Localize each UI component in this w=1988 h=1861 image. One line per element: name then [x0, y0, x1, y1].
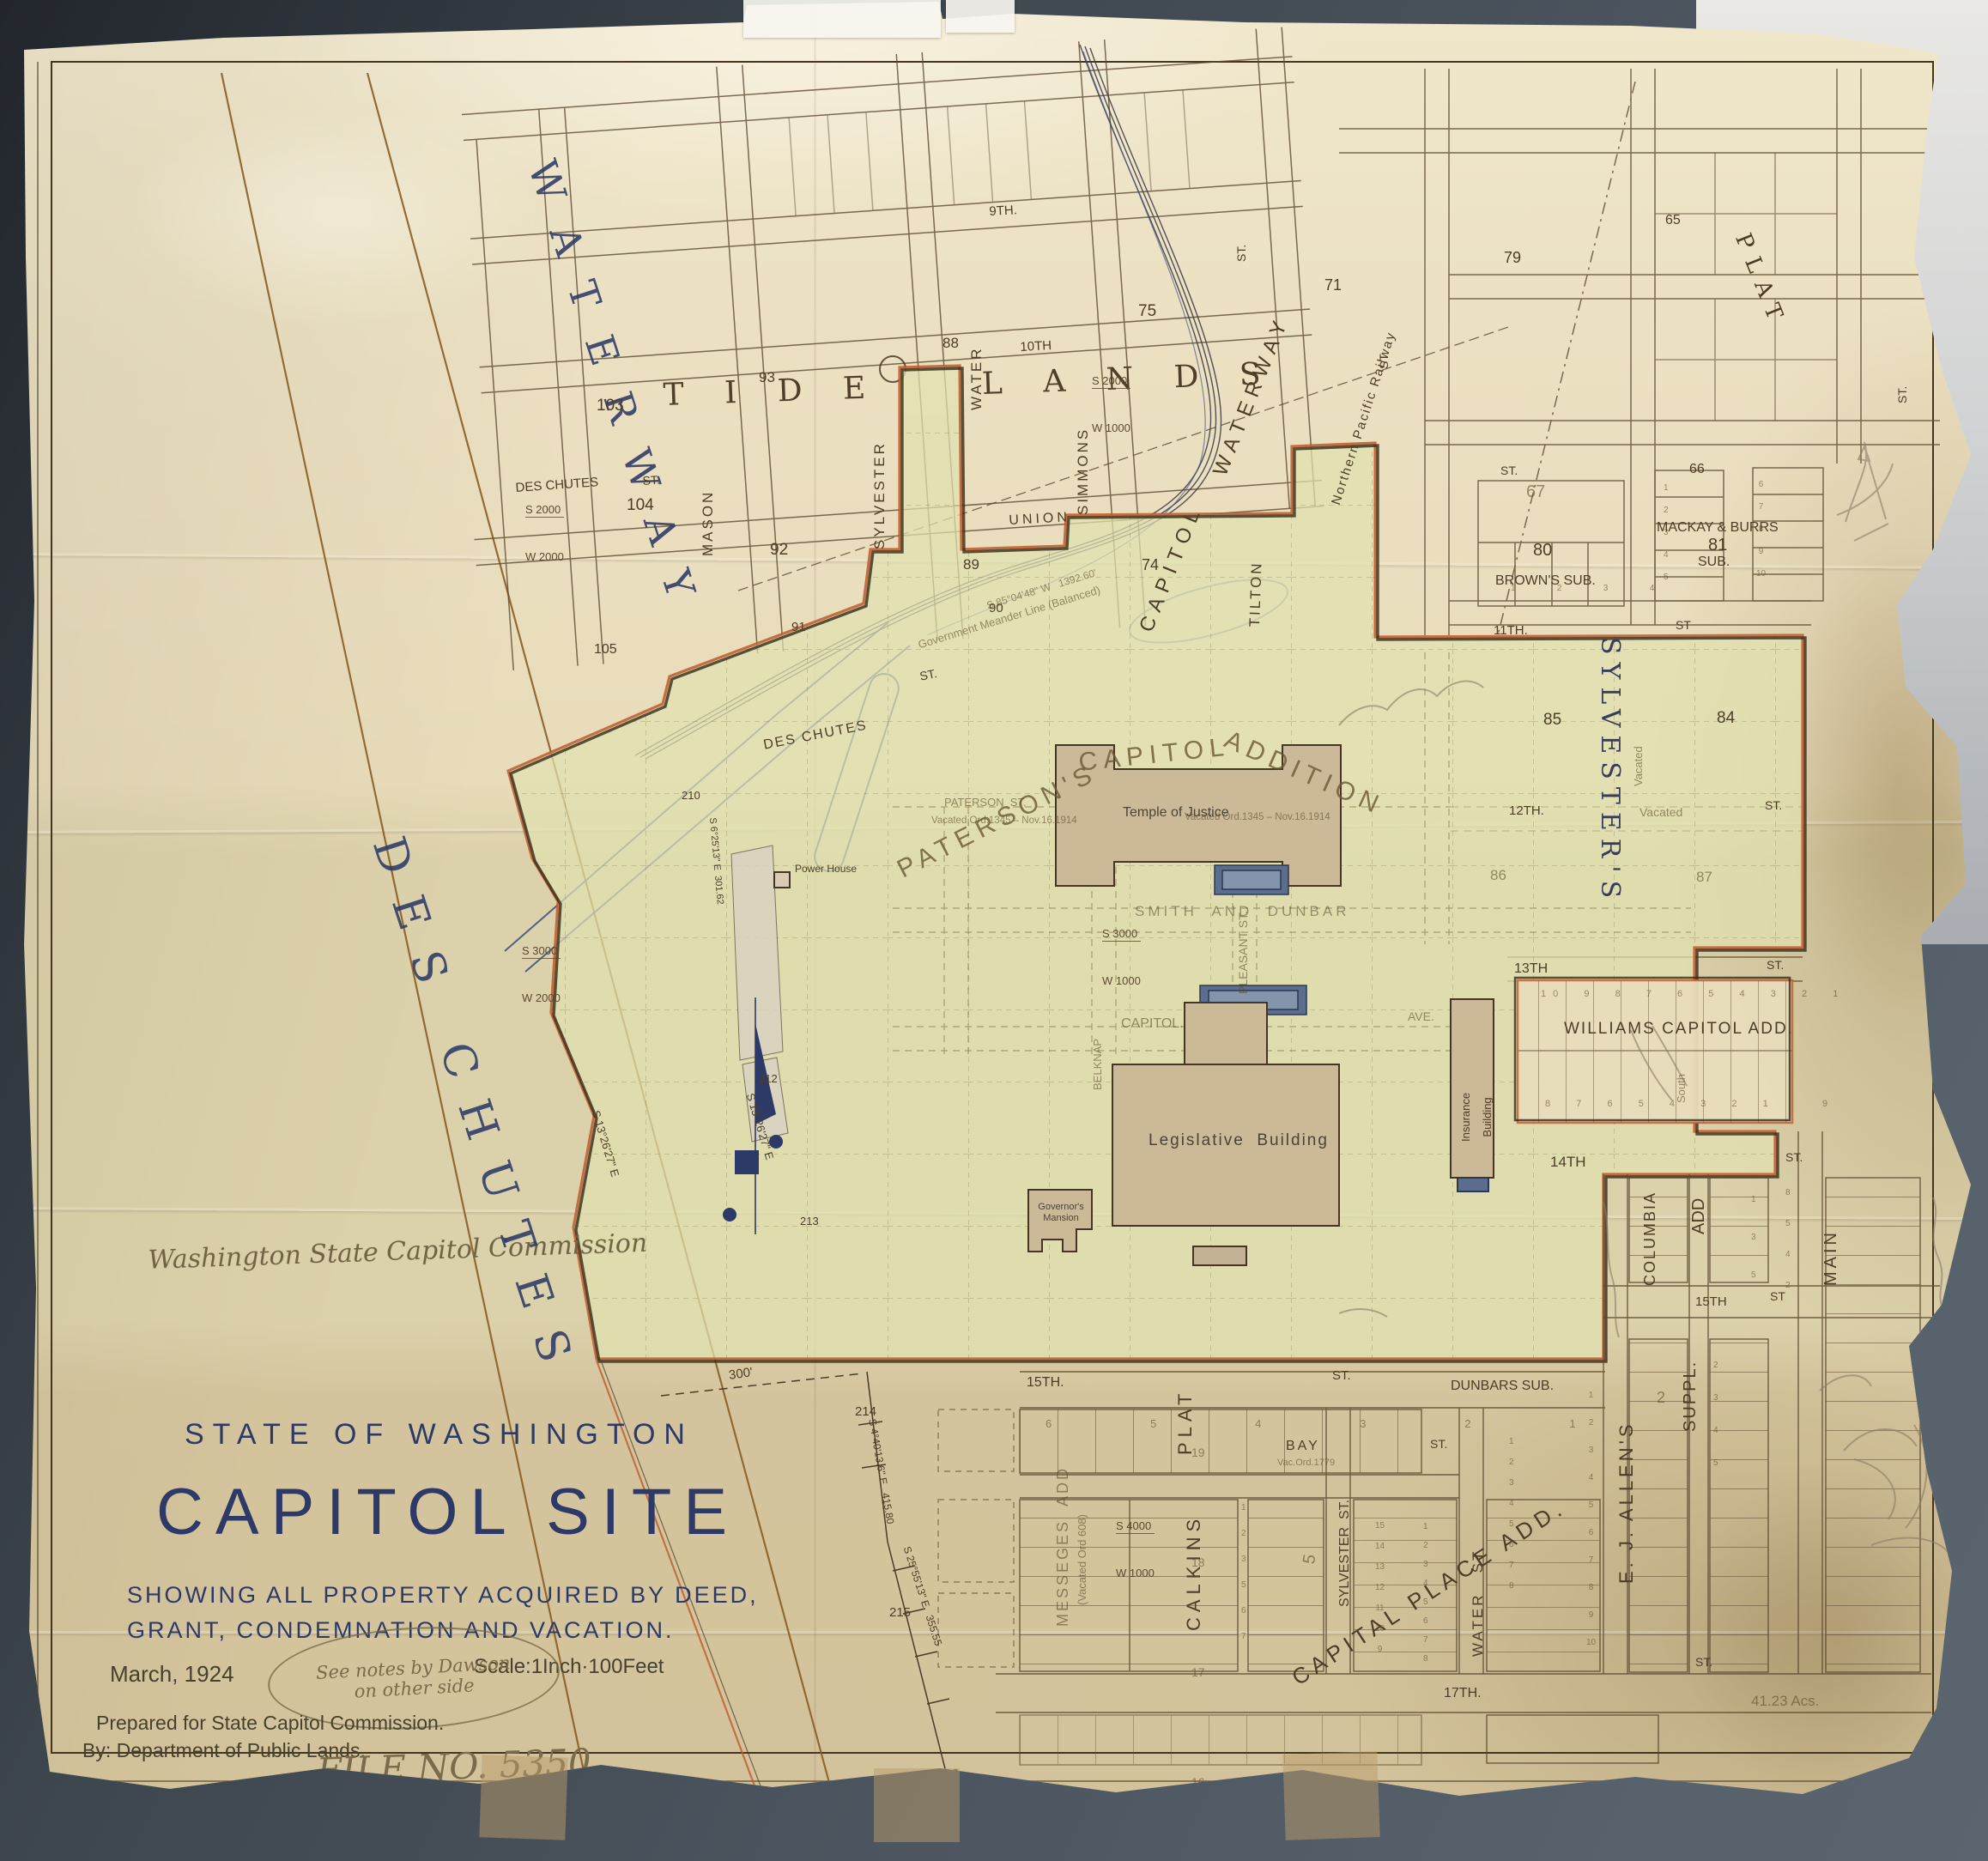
block-74: 74	[1142, 556, 1159, 574]
block-85: 85	[1543, 711, 1561, 730]
block-90: 90	[989, 601, 1003, 615]
mackay-lots-col1: 1 2 3 4 5	[1664, 477, 1669, 589]
street-15th-east: 15TH	[1695, 1294, 1727, 1309]
block-92: 92	[770, 541, 788, 560]
street-st-c: ST.	[1895, 386, 1909, 403]
survey-mark-west: W 1000	[1092, 421, 1130, 436]
ej-allens-label: E. J. ALLEN'S	[1615, 1422, 1637, 1585]
block-104: 104	[627, 496, 654, 515]
map-date: March, 1924	[110, 1662, 234, 1688]
survey-mark-west: W 2000	[522, 991, 561, 1006]
street-ave: AVE.	[1408, 1009, 1434, 1023]
browns-lots: 1 2 3 4	[1511, 584, 1663, 594]
block-65: 65	[1665, 213, 1681, 228]
block-71: 71	[1324, 276, 1342, 294]
station-210: 210	[682, 790, 700, 803]
acreage-label: 41.23 Acs.	[1751, 1693, 1819, 1710]
survey-mark-south: S 2000	[525, 502, 564, 518]
tape-strip-bottom-2	[874, 1768, 960, 1842]
columbia-lots: 1 3 5	[1751, 1181, 1756, 1294]
survey-mark-south: S 2000	[1092, 373, 1130, 390]
block-79: 79	[1504, 249, 1521, 267]
sylvester-vacated: Vacated	[1633, 746, 1646, 786]
street-11th: 11TH.	[1494, 623, 1528, 638]
survey-mark-west: W 1000	[1102, 973, 1141, 989]
sylvesters-plat-label: SYLVESTER'S	[1595, 637, 1625, 906]
street-10th: 10TH	[1020, 338, 1052, 355]
street-12th: 12TH.	[1509, 803, 1544, 818]
dunbars-sub-label: DUNBARS SUB.	[1451, 1379, 1554, 1394]
block-89: 89	[963, 556, 979, 573]
calkins-block-numbers: 19 18 17 16	[1191, 1397, 1205, 1837]
block-81: 81	[1708, 536, 1727, 555]
street-union: UNION	[1009, 510, 1070, 529]
mackay-lots-col2: 6 7 8 9 10	[1756, 474, 1766, 585]
legislative-north-wing	[1185, 1003, 1267, 1068]
street-sylvester-north: SYLVESTER	[871, 441, 888, 549]
suppl-lots: 2 3 4 5	[1713, 1349, 1718, 1480]
street-st-k: ST.	[1695, 1655, 1712, 1669]
williams-addition-label: WILLIAMS CAPITOL ADD.	[1564, 1020, 1794, 1039]
prepared-for-line: Prepared for State Capitol Commission.	[96, 1712, 444, 1734]
mackay-sub-label: SUB.	[1698, 555, 1730, 570]
street-simmons: SIMMONS	[1075, 427, 1092, 515]
station-214: 214	[855, 1404, 876, 1419]
street-bay: BAY	[1286, 1439, 1320, 1454]
main-block-lots: 8 5 4 2	[1785, 1178, 1791, 1301]
street-st-j: ST	[1770, 1289, 1785, 1303]
messeges-add-label: MESSEGES ADD	[1054, 1466, 1072, 1627]
survey-mark-4: S 3000 W 1000	[1102, 894, 1141, 1020]
survey-mark-west: W 2000	[525, 549, 564, 565]
block-93: 93	[759, 369, 775, 386]
street-tilton: TILTON	[1246, 561, 1265, 627]
tape-strip-top-2	[946, 0, 1015, 33]
street-9th: 9TH.	[989, 203, 1017, 219]
street-st-i: ST.	[1332, 1368, 1351, 1383]
columbia-label: COLUMBIA	[1641, 1191, 1659, 1286]
ej-allens-lots: 1 2 3 4 5 6 7 8 9 10	[1586, 1382, 1596, 1657]
street-belknap-vacated: BELKNAP	[1092, 1039, 1105, 1090]
legislative-building-label: Legislative Building	[1149, 1131, 1329, 1150]
block-75: 75	[1138, 302, 1156, 321]
block-80: 80	[1533, 541, 1552, 561]
block-87: 87	[1696, 869, 1712, 886]
survey-mark-3: S 2000 W 1000	[1092, 342, 1130, 467]
street-st-b: ST.	[1377, 352, 1391, 369]
street-15th-west: 15TH.	[1027, 1375, 1064, 1391]
power-house-footprint	[774, 872, 790, 888]
title-subtitle-1: SHOWING ALL PROPERTY ACQUIRED BY DEED,	[127, 1582, 759, 1609]
block-105: 105	[594, 642, 617, 658]
street-mason: MASON	[700, 490, 717, 556]
block-2: 2	[1657, 1389, 1665, 1407]
street-st-h: ST.	[1785, 1150, 1803, 1164]
street-water-south: WATER ST	[1470, 1549, 1487, 1657]
block-66: 66	[1689, 462, 1705, 477]
block-88: 88	[942, 335, 959, 352]
block-86: 86	[1490, 867, 1506, 884]
survey-mark-south: S 3000	[1102, 926, 1141, 943]
street-17th: 17TH.	[1444, 1686, 1482, 1701]
williams-lots-bottom: 8 7 6 5 4 3 2 1 9	[1545, 1099, 1834, 1110]
street-st-e: ST	[1676, 618, 1691, 632]
survey-mark-2: S 2000 W 2000	[525, 470, 564, 596]
street-st-a: ST.	[1234, 245, 1248, 262]
street-st-d: ST.	[1500, 464, 1518, 477]
street-st-m: ST.	[642, 473, 660, 488]
legislative-south-apron	[1193, 1246, 1246, 1265]
title-state: STATE OF WASHINGTON	[185, 1418, 694, 1452]
temple-of-justice-label: Temple of Justice	[1123, 805, 1229, 821]
insurance-building-label: Insurance Building	[1456, 1093, 1498, 1142]
capital-place-lots-left: 15 14 13 12 11 10 9	[1375, 1516, 1385, 1660]
tape-strip-top-1	[743, 0, 941, 38]
block-84: 84	[1717, 709, 1735, 728]
station-212: 212	[759, 1073, 778, 1086]
survey-mark-south: S 4000	[1116, 1519, 1155, 1535]
vacated-ord-1779: Vac.Ord.1779	[1277, 1458, 1335, 1469]
street-13th: 13TH	[1514, 961, 1548, 977]
street-st-g: ST.	[1767, 958, 1784, 972]
capital-place-lots-right: 1 2 3 4 5 6 7 8	[1423, 1518, 1428, 1669]
street-st-f: ST.	[1765, 798, 1782, 812]
survey-mark-5: S 4000 W 1000	[1116, 1487, 1155, 1612]
street-water-north: WATER	[968, 347, 985, 411]
street-14th: 14TH	[1550, 1154, 1586, 1171]
tape-strip-bottom-3	[1282, 1751, 1379, 1840]
messeges-vacated-label: (Vacated Ord 608)	[1076, 1514, 1089, 1605]
street-12th-vacated: Vacated	[1639, 805, 1682, 819]
governors-mansion-label: Governor's Mansion	[1033, 1202, 1088, 1223]
water-block-lots: 1 2 3 4 5 6 7 8	[1509, 1432, 1514, 1597]
williams-lots-top: 10 9 8 7 6 5 4 3 2 1	[1541, 989, 1845, 1000]
columbia-add-label: ADD	[1689, 1198, 1709, 1234]
suppl-label: SUPPL.	[1681, 1361, 1700, 1432]
block-103: 103	[597, 397, 624, 415]
street-pleasant-vacated: PLEASANT ST.	[1236, 911, 1250, 994]
survey-mark-1: S 3000 W 2000	[522, 912, 561, 1037]
power-house-label: Power House	[795, 864, 857, 876]
dunbars-lots-row: 6 5 4 3 2 1	[1046, 1418, 1598, 1431]
paterson-st-label: PATERSON ST.	[944, 797, 1027, 809]
street-st-l: ST.	[1430, 1437, 1447, 1451]
title-main: CAPITOL SITE	[156, 1475, 739, 1549]
main-street-label: MAIN	[1821, 1229, 1841, 1286]
photograph-of-map: STATE OF WASHINGTON CAPITOL SITE SHOWING…	[0, 0, 1988, 1861]
survey-mark-south: S 3000	[522, 943, 561, 960]
station-215: 215	[889, 1605, 911, 1620]
station-213: 213	[800, 1215, 819, 1228]
street-sylvester-south: SYLVESTER ST.	[1337, 1500, 1353, 1607]
map-content: STATE OF WASHINGTON CAPITOL SITE SHOWING…	[0, 0, 1988, 1861]
insurance-building-footprint	[1451, 999, 1494, 1178]
block-67: 67	[1526, 482, 1545, 502]
survey-mark-west: W 1000	[1116, 1566, 1155, 1581]
bay-block-lots: 1 2 3 5 6 7	[1241, 1495, 1246, 1650]
block-91: 91	[791, 620, 806, 634]
vacated-ord-1345-a: Vacated Ord.1345 – Nov.16.1914	[931, 815, 1077, 827]
tape-strip-bottom-1	[479, 1755, 567, 1840]
